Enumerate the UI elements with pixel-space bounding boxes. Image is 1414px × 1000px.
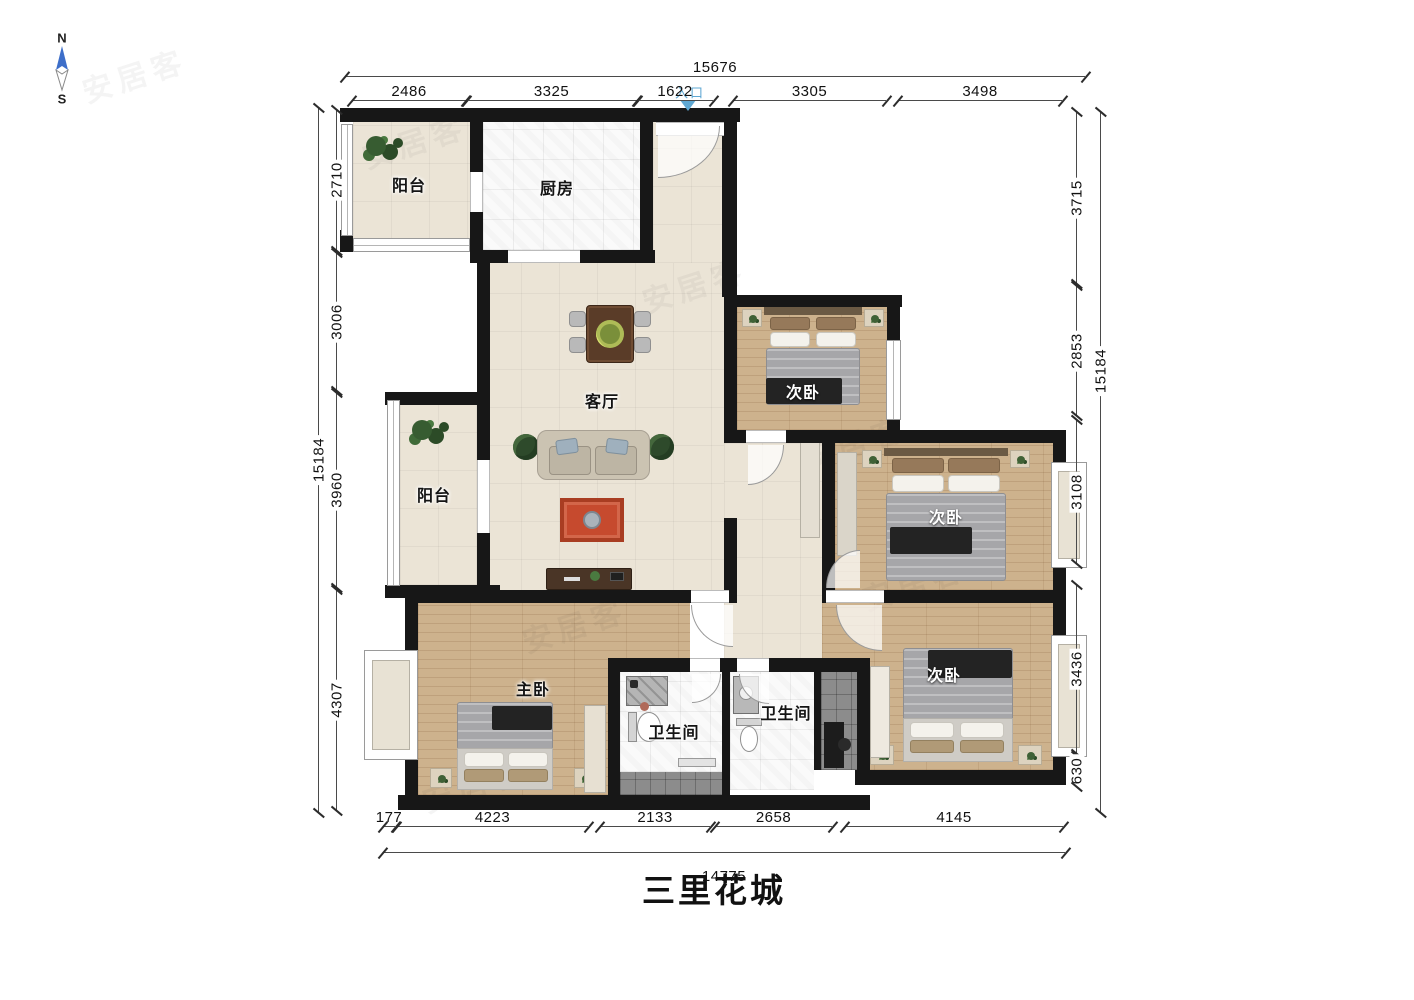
dining-chair bbox=[569, 337, 586, 353]
nightstand bbox=[430, 768, 452, 788]
wall bbox=[722, 122, 737, 297]
room-label-master: 主卧 bbox=[516, 676, 550, 700]
wall bbox=[477, 533, 490, 590]
master-door-arc bbox=[691, 605, 733, 647]
room-label-bath2: 卫生间 bbox=[760, 700, 811, 724]
wardrobe-bedroom3 bbox=[870, 666, 890, 758]
bed-pillow bbox=[464, 752, 504, 767]
bed-cushion bbox=[910, 740, 954, 753]
dim-bottom-total: 14775 bbox=[383, 852, 1065, 853]
bath1-sink-counter bbox=[678, 758, 716, 767]
floor-plan-canvas: 安居客 安居客 安居客 安居客 安居客 安居客 安居客 N S bbox=[0, 0, 1414, 1000]
bed-pillow bbox=[910, 722, 954, 738]
room-label-bedroom2: 次卧 bbox=[929, 504, 963, 528]
bed-cushion bbox=[948, 458, 1000, 473]
sofa-pillow bbox=[555, 438, 579, 456]
dim-left-seg1: 3006 bbox=[336, 253, 337, 390]
bed-headboard bbox=[764, 307, 862, 315]
room-label-balcony-top: 阳台 bbox=[392, 172, 426, 196]
compass-south-label: S bbox=[58, 92, 67, 107]
window-master-bay-inner bbox=[372, 660, 410, 750]
dim-top-seg2: 1622 bbox=[637, 100, 713, 101]
room-label-bedroom1: 次卧 bbox=[786, 379, 820, 403]
bed-pillow bbox=[892, 475, 944, 492]
wall bbox=[470, 122, 483, 172]
sofa-side-plant-icon bbox=[648, 434, 674, 460]
dim-bottom-seg3: 2658 bbox=[715, 826, 832, 827]
bed-cushion bbox=[508, 769, 548, 782]
dim-left-seg0: 2710 bbox=[336, 110, 337, 250]
tv-stand-box bbox=[610, 572, 624, 581]
dim-top-seg1: 3325 bbox=[466, 100, 637, 101]
wall bbox=[398, 795, 870, 810]
toilet-tank bbox=[736, 718, 762, 726]
dim-left-seg3: 4307 bbox=[336, 590, 337, 810]
wall bbox=[405, 590, 737, 603]
nightstand bbox=[742, 309, 762, 327]
dim-right-total: 15184 bbox=[1100, 112, 1101, 812]
dim-bottom-seg4: 4145 bbox=[845, 826, 1063, 827]
dim-right-seg0: 3715 bbox=[1076, 112, 1077, 283]
watermark-text: 安居客 bbox=[76, 36, 192, 111]
table-plant-icon bbox=[596, 320, 624, 348]
bed-pillow bbox=[770, 332, 810, 347]
bed-cushion bbox=[816, 317, 856, 330]
bed-headboard bbox=[884, 448, 1008, 456]
dim-bottom-seg2: 2133 bbox=[600, 826, 710, 827]
window-balcony-top-sill bbox=[353, 238, 470, 252]
wall bbox=[608, 672, 620, 795]
tv-remote bbox=[564, 577, 580, 581]
balcony-left-slider-gap bbox=[477, 460, 490, 533]
room-label-bedroom3: 次卧 bbox=[927, 662, 961, 686]
dining-chair bbox=[634, 311, 651, 327]
shower-head bbox=[630, 680, 638, 688]
sofa-pillow bbox=[605, 438, 629, 456]
dim-right-seg1: 2853 bbox=[1076, 286, 1077, 415]
nightstand bbox=[1010, 450, 1030, 468]
toilet bbox=[740, 726, 758, 752]
dim-left-seg2: 3960 bbox=[336, 393, 337, 587]
dim-bottom-seg0: 177 bbox=[383, 826, 395, 827]
dim-top-seg3: 3305 bbox=[733, 100, 886, 101]
bath1-door-gap bbox=[690, 658, 720, 672]
bed-cushion bbox=[892, 458, 944, 473]
wall bbox=[477, 252, 490, 405]
balcony-top-door-gap bbox=[470, 172, 483, 212]
room-label-balcony-left: 阳台 bbox=[417, 482, 451, 506]
bed-pillow bbox=[508, 752, 548, 767]
bath-plant-icon bbox=[640, 702, 649, 711]
room-label-kitchen: 厨房 bbox=[540, 175, 574, 199]
room-label-living: 客厅 bbox=[585, 388, 619, 412]
window-balcony-left bbox=[387, 400, 400, 586]
tv-stand-plant-icon bbox=[590, 571, 600, 581]
dim-left-total: 15184 bbox=[318, 108, 319, 812]
toilet-tank bbox=[628, 712, 637, 742]
dim-top-total: 15676 bbox=[345, 76, 1085, 77]
dim-right-seg3: 3436 bbox=[1076, 585, 1077, 753]
nightstand bbox=[862, 450, 882, 468]
bed-cushion bbox=[464, 769, 504, 782]
compass-needle-icon bbox=[51, 46, 73, 92]
bed-head-bar bbox=[492, 706, 552, 730]
dining-chair bbox=[634, 337, 651, 353]
kitchen-door-gap bbox=[508, 250, 580, 263]
dim-right-seg4: 630 bbox=[1076, 756, 1077, 786]
bed-pillow bbox=[948, 475, 1000, 492]
wall bbox=[722, 672, 730, 795]
bed-pillow bbox=[816, 332, 856, 347]
bedroom2-3-door-gap bbox=[826, 590, 884, 603]
wall bbox=[724, 518, 737, 593]
wall bbox=[385, 392, 490, 405]
wall bbox=[477, 405, 490, 460]
bed-pillow bbox=[960, 722, 1004, 738]
floor-bath1-dark-strip bbox=[620, 772, 724, 795]
wall bbox=[470, 212, 483, 252]
bed-cushion bbox=[960, 740, 1004, 753]
dim-right-seg2: 3108 bbox=[1076, 420, 1077, 563]
room-label-bath1: 卫生间 bbox=[648, 719, 699, 743]
wall bbox=[814, 672, 821, 770]
sofa-side-plant-icon bbox=[513, 434, 539, 460]
balcony-plant-icon bbox=[366, 136, 386, 156]
wall bbox=[855, 770, 1066, 785]
wardrobe-master bbox=[584, 705, 606, 793]
wall bbox=[857, 658, 870, 770]
master-door-gap bbox=[691, 590, 729, 603]
bed-master bbox=[430, 700, 596, 795]
dim-top-seg4: 3498 bbox=[898, 100, 1062, 101]
nightstand bbox=[1018, 745, 1042, 765]
utility-chair bbox=[838, 738, 851, 751]
bed-cushion bbox=[770, 317, 810, 330]
bath2-door-gap bbox=[737, 658, 769, 672]
dim-top-seg0: 2486 bbox=[352, 100, 466, 101]
bedroom1-door-gap bbox=[746, 430, 786, 443]
dining-chair bbox=[569, 311, 586, 327]
wall bbox=[724, 297, 737, 430]
bed-footer-bar bbox=[890, 527, 972, 554]
window-bedroom1 bbox=[886, 340, 901, 420]
balcony-plant-icon bbox=[412, 420, 432, 440]
nightstand bbox=[864, 309, 884, 327]
hallway-cabinet bbox=[800, 440, 820, 538]
wall bbox=[640, 122, 653, 252]
entrance-arrow-icon bbox=[680, 100, 696, 111]
compass-north-label: N bbox=[57, 31, 66, 46]
wardrobe-bedroom2 bbox=[837, 452, 857, 556]
dim-bottom-seg1: 4223 bbox=[397, 826, 588, 827]
rug-medallion bbox=[583, 511, 601, 529]
wall bbox=[730, 295, 902, 307]
